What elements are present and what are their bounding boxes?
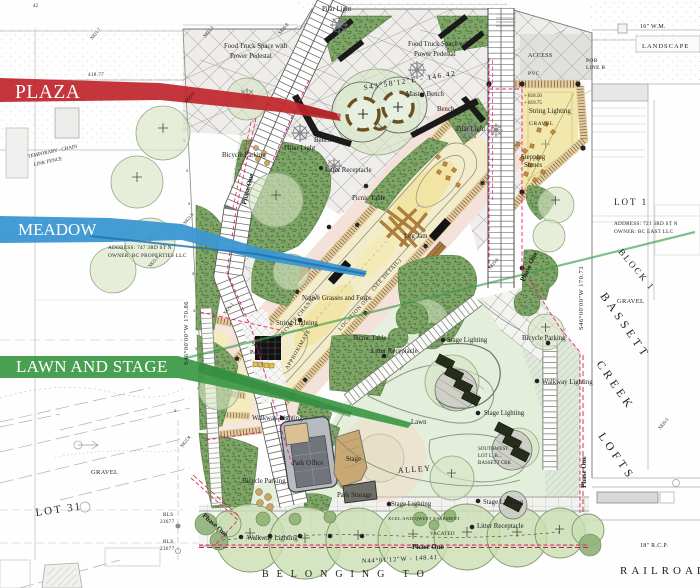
svg-text:Park Storage: Park Storage (337, 492, 372, 499)
svg-text:Bench: Bench (437, 106, 455, 113)
svg-text:Food Truck Space with: Food Truck Space with (224, 43, 288, 50)
svg-text:Stage Lighting: Stage Lighting (391, 501, 432, 508)
svg-text:Pavilion: Pavilion (250, 350, 270, 356)
svg-text:Stones: Stones (524, 162, 542, 169)
svg-text:Power Pedestal: Power Pedestal (414, 51, 456, 58)
svg-text:PVC: PVC (528, 71, 540, 77)
svg-text:18" R.C.P.: 18" R.C.P. (640, 543, 668, 549)
svg-text:ADDRESS: 747 3RD ST N: ADDRESS: 747 3RD ST N (108, 245, 172, 251)
svg-text:XCEL AND QWEST EASEMENT: XCEL AND QWEST EASEMENT (388, 516, 460, 521)
svg-text:Bicycle Parking: Bicycle Parking (242, 478, 286, 485)
svg-text:23677: 23677 (160, 519, 175, 525)
svg-text:BASSETT CRK: BASSETT CRK (478, 461, 511, 466)
svg-text:Pilar Light: Pilar Light (322, 6, 351, 13)
svg-text:OWNER: BC PROPERTIES LLC: OWNER: BC PROPERTIES LLC (108, 253, 187, 259)
svg-text:Bicycle Parking: Bicycle Parking (222, 152, 266, 159)
svg-text:Walkway Lighting: Walkway Lighting (252, 415, 303, 422)
svg-text:LINE B: LINE B (586, 65, 605, 71)
svg-text:Lawn: Lawn (411, 419, 427, 426)
svg-text:MEADOW: MEADOW (18, 220, 97, 239)
svg-text:Walkway Lighting: Walkway Lighting (247, 535, 298, 542)
svg-text:SOUTHWEST: SOUTHWEST (478, 447, 508, 452)
svg-text:GRAVEL: GRAVEL (529, 121, 554, 127)
svg-text:BELONGING TO: BELONGING TO (262, 569, 432, 580)
svg-text:ADDRESS: 721 3RD ST N: ADDRESS: 721 3RD ST N (614, 221, 678, 227)
svg-text:LOT 1: LOT 1 (614, 197, 648, 207)
svg-text:String Lighting: String Lighting (529, 108, 571, 115)
svg-text:Picnic Table: Picnic Table (353, 335, 387, 342)
svg-text:LOT L, B...: LOT L, B... (478, 454, 502, 459)
svg-text:16" W.M.: 16" W.M. (640, 24, 666, 30)
svg-text:LANDSCAPE: LANDSCAPE (642, 43, 689, 50)
svg-text:Litter Receptacle: Litter Receptacle (371, 348, 418, 355)
svg-text:Bench: Bench (314, 137, 332, 144)
svg-text:Stage Lighting: Stage Lighting (483, 499, 524, 506)
svg-text:Walkway Lighting: Walkway Lighting (542, 379, 593, 386)
svg-text:PLAZA: PLAZA (15, 82, 80, 103)
svg-text:Stage Lighting: Stage Lighting (447, 337, 488, 344)
svg-text:S46°00'00"W 170.86: S46°00'00"W 170.86 (183, 301, 190, 365)
svg-text:Litter Receptacle: Litter Receptacle (325, 167, 372, 174)
svg-text:RLS: RLS (163, 512, 173, 518)
svg-text:Park Office: Park Office (292, 460, 323, 467)
svg-text:RAILROAD: RAILROAD (620, 565, 700, 577)
svg-text:23677: 23677 (160, 546, 175, 552)
svg-text:Phase One: Phase One (580, 456, 588, 488)
svg-text:Stage Lighting: Stage Lighting (484, 410, 525, 417)
svg-text:Master Bench: Master Bench (406, 91, 445, 98)
svg-text:GRAVEL: GRAVEL (617, 298, 644, 305)
svg-text:VACATED: VACATED (430, 532, 455, 537)
svg-text:Phase One: Phase One (412, 543, 444, 551)
svg-text:Power Pedestal: Power Pedestal (230, 53, 272, 60)
svg-text:RLS: RLS (163, 539, 173, 545)
svg-text:Native Grasses and Forbs: Native Grasses and Forbs (302, 295, 372, 302)
svg-text:42: 42 (33, 4, 39, 9)
svg-text:S46°00'00"W 170.73: S46°00'00"W 170.73 (578, 266, 585, 330)
svg-text:String Lighting: String Lighting (276, 320, 318, 327)
svg-text:GRAVEL: GRAVEL (91, 469, 118, 476)
svg-text:Food Truck Space with: Food Truck Space with (408, 41, 472, 48)
svg-text:Log Jam: Log Jam (404, 233, 428, 240)
svg-text:Litter Receptacle: Litter Receptacle (477, 523, 524, 530)
svg-text:Seating: Seating (252, 342, 270, 348)
svg-text:Pillar Light: Pillar Light (284, 145, 315, 152)
svg-text:+ 819.75: + 819.75 (524, 101, 542, 106)
svg-text:+ 818.50: + 818.50 (524, 94, 542, 99)
svg-text:ACCESS: ACCESS (528, 53, 552, 59)
svg-text:Stepping: Stepping (521, 154, 546, 161)
svg-text:418.77: 418.77 (88, 72, 104, 78)
svg-text:Pilar Light: Pilar Light (456, 126, 485, 133)
svg-text:Picnic Table: Picnic Table (352, 195, 386, 202)
svg-text:Stage: Stage (346, 456, 361, 463)
svg-text:LAWN AND STAGE: LAWN AND STAGE (16, 357, 168, 376)
svg-text:POB: POB (586, 58, 598, 64)
svg-text:Bicycle Parking: Bicycle Parking (522, 335, 566, 342)
svg-text:OWNER: BC EAST LLC: OWNER: BC EAST LLC (614, 229, 674, 235)
